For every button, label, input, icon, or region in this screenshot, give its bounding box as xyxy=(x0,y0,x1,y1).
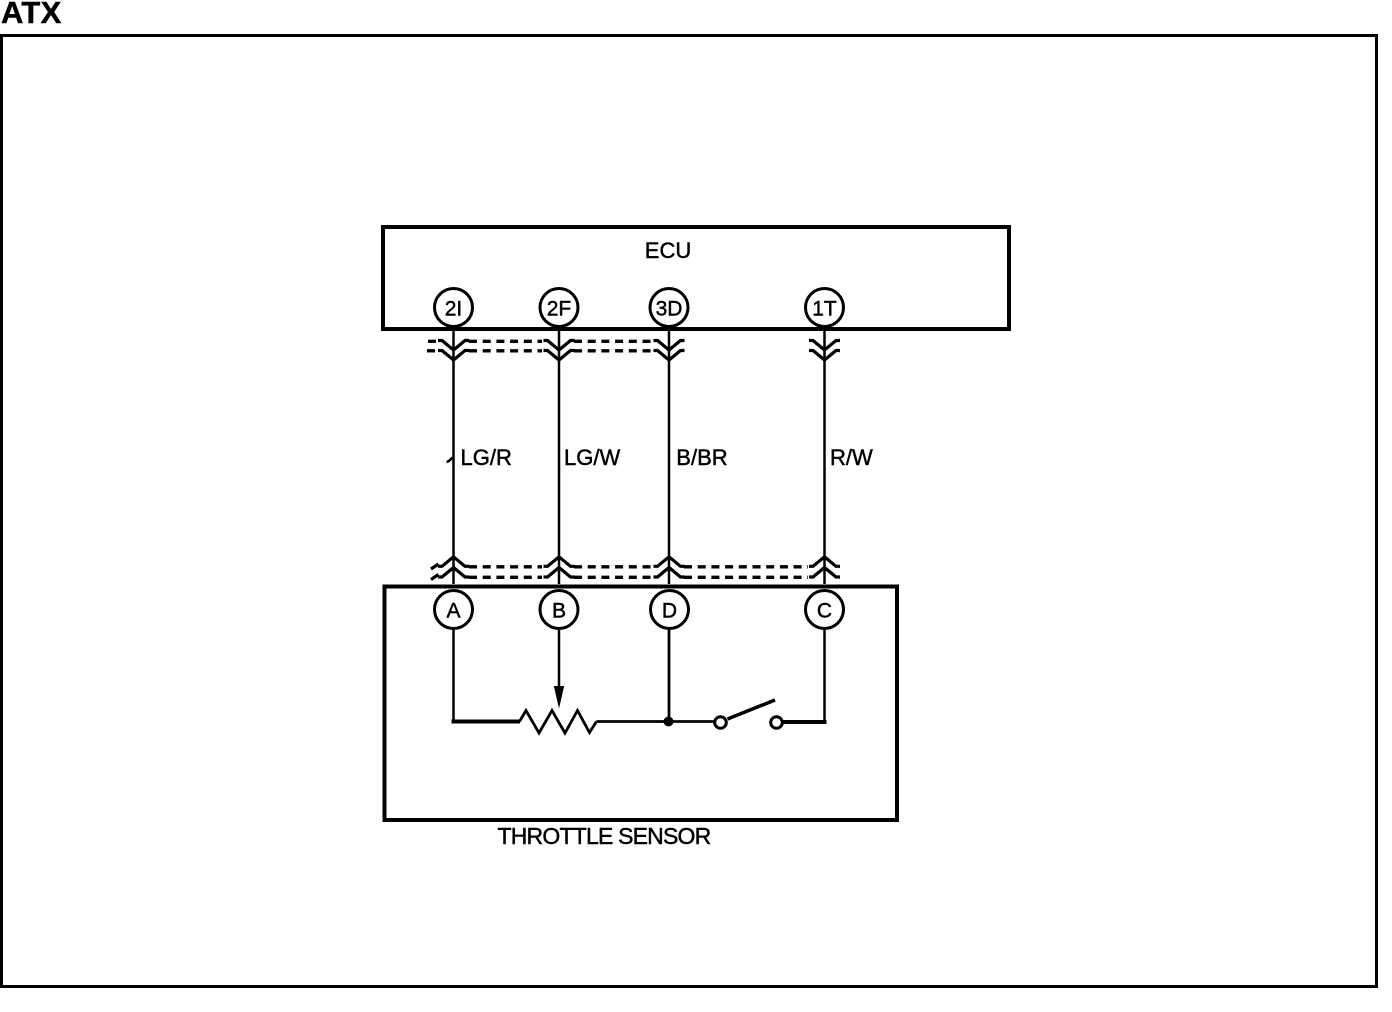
svg-text:1T: 1T xyxy=(812,298,837,321)
svg-text:C: C xyxy=(817,600,832,623)
svg-text:B: B xyxy=(552,600,566,623)
svg-text:2I: 2I xyxy=(445,298,463,321)
svg-text:A: A xyxy=(446,600,460,623)
svg-text:THROTTLE SENSOR: THROTTLE SENSOR xyxy=(498,823,711,849)
svg-text:R/W: R/W xyxy=(830,445,873,470)
svg-text:ATX: ATX xyxy=(1,0,62,30)
svg-text:ECU: ECU xyxy=(645,238,691,263)
svg-text:2F: 2F xyxy=(547,298,572,321)
svg-text:D: D xyxy=(662,600,677,623)
svg-text:B/BR: B/BR xyxy=(676,445,727,470)
svg-text:3D: 3D xyxy=(656,298,683,321)
svg-text:LG/R: LG/R xyxy=(461,445,512,470)
svg-text:LG/W: LG/W xyxy=(564,445,620,470)
